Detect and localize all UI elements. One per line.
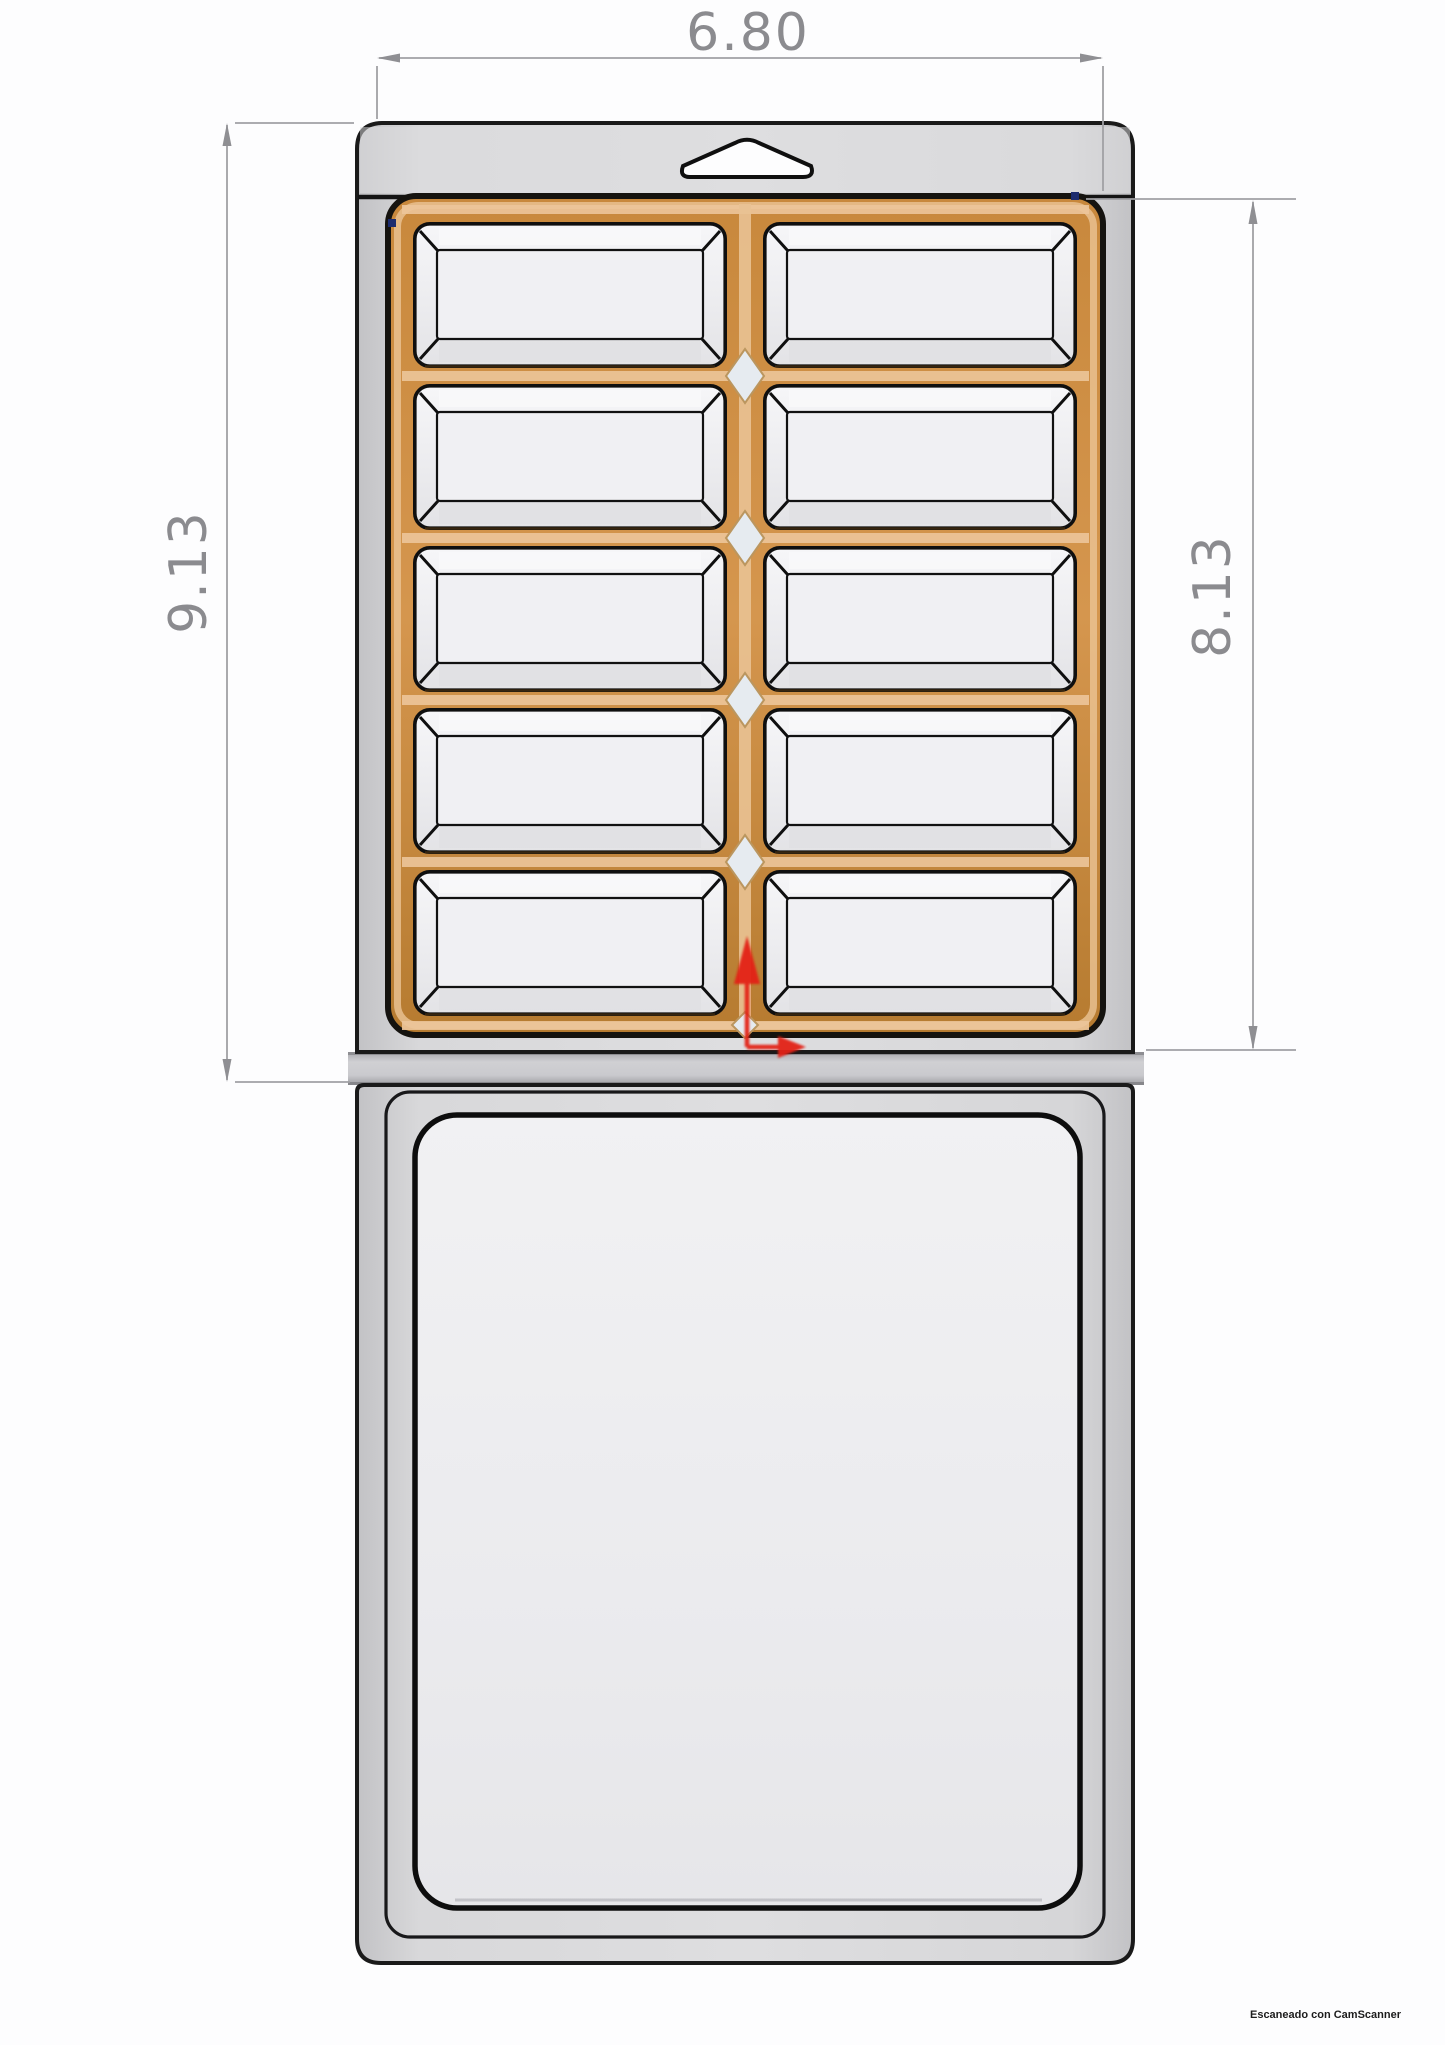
hinge-strip	[348, 1052, 1144, 1085]
clamshell-package-drawing: 6.80 9.13 8.13 Escaneado con CamScanner	[0, 0, 1445, 2045]
pocket-r5c2	[765, 872, 1075, 1015]
pocket-r1c1	[415, 224, 725, 367]
pocket-r4c2	[765, 710, 1075, 853]
pocket-r2c1	[415, 386, 725, 529]
lid-recess	[415, 1115, 1080, 1908]
bottom-card	[357, 1085, 1133, 1967]
pocket-r2c2	[765, 386, 1075, 529]
dimension-overall-height-label: 9.13	[159, 510, 219, 634]
top-card	[357, 123, 1133, 1058]
pocket-r3c1	[415, 548, 725, 691]
flange-center-stripe	[739, 204, 751, 1026]
hinge-band	[348, 1052, 1144, 1085]
scanned-cad-drawing-page: 6.80 9.13 8.13 Escaneado con CamScanner	[0, 0, 1445, 2045]
pocket-r5c1	[415, 872, 725, 1015]
dimension-width-label: 6.80	[686, 3, 810, 63]
camscanner-watermark: Escaneado con CamScanner	[1250, 2009, 1402, 2021]
dimension-blister-height-label: 8.13	[1183, 534, 1243, 658]
vertex-marker	[1071, 192, 1079, 200]
vertex-marker	[388, 219, 396, 227]
pocket-r1c2	[765, 224, 1075, 367]
pocket-r3c2	[765, 548, 1075, 691]
pocket-r4c1	[415, 710, 725, 853]
